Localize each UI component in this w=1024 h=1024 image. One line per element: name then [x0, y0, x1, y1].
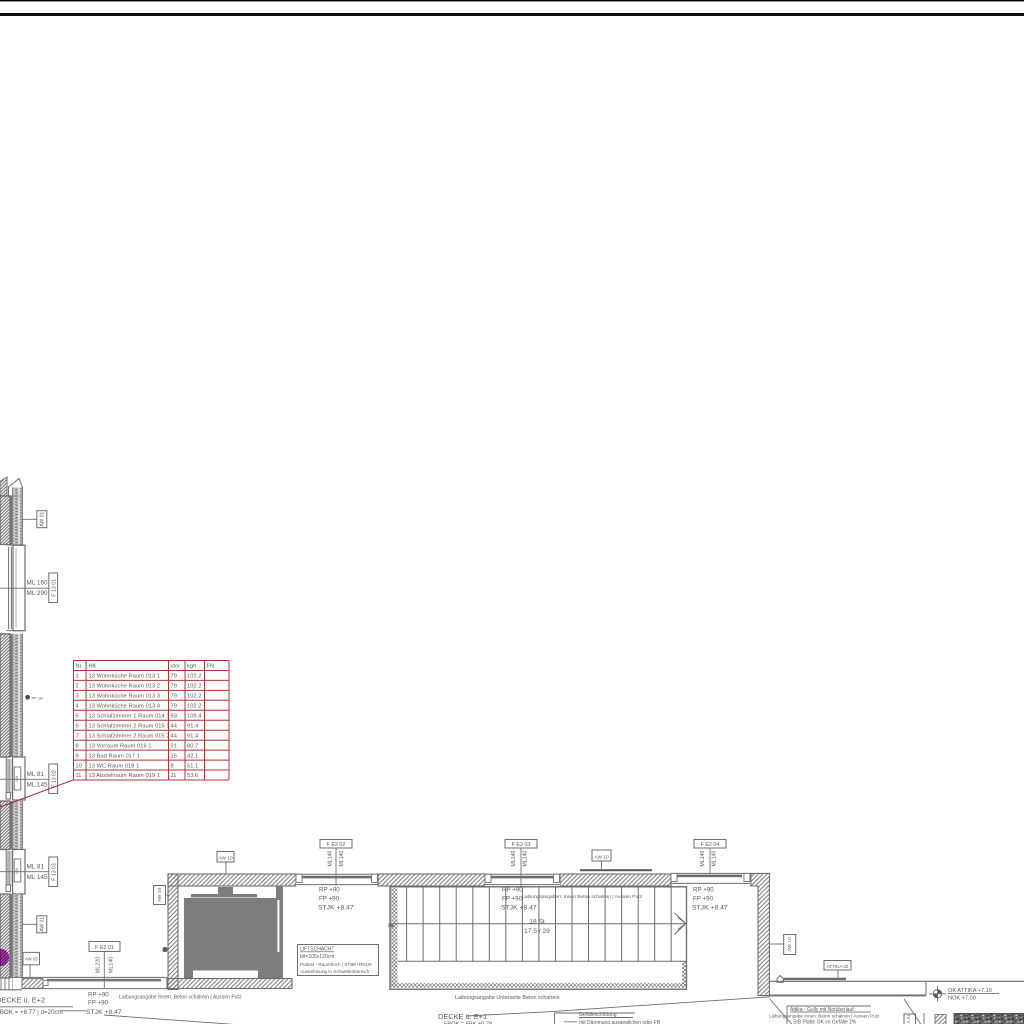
svg-text:FBOK = +8.77 | d=20cm: FBOK = +8.77 | d=20cm [0, 1009, 63, 1016]
svg-text:13 Wohnküche Raum 013 4: 13 Wohnküche Raum 013 4 [89, 704, 161, 710]
svg-text:AW 03: AW 03 [25, 957, 39, 962]
svg-text:vtor: vtor [171, 664, 181, 670]
svg-text:4: 4 [76, 704, 79, 710]
svg-text:102.2: 102.2 [187, 674, 201, 680]
svg-text:13 Abstellraum Raum 019 1: 13 Abstellraum Raum 019 1 [89, 773, 160, 779]
svg-text:31: 31 [171, 743, 177, 749]
svg-text:51.1: 51.1 [187, 763, 198, 769]
svg-text:PP 1B: PP 1B [32, 696, 44, 701]
svg-text:FP +90: FP +90 [88, 1000, 109, 1007]
svg-text:RP +90: RP +90 [502, 887, 523, 894]
svg-text:79: 79 [171, 704, 177, 710]
svg-text:L84: L84 [15, 776, 19, 782]
svg-text:10: 10 [76, 763, 82, 769]
svg-text:13 Vorraum Raum 016 1: 13 Vorraum Raum 016 1 [89, 743, 152, 749]
svg-text:ATTIKA 02: ATTIKA 02 [827, 964, 849, 969]
svg-text:kgh: kgh [187, 664, 196, 670]
svg-text:FN: FN [207, 664, 215, 670]
svg-text:b/t=105x120cm: b/t=105x120cm [300, 954, 334, 960]
svg-text:8: 8 [171, 763, 174, 769]
svg-text:ML140: ML140 [328, 850, 334, 866]
svg-text:F E2 01: F E2 01 [95, 945, 114, 951]
svg-text:ML140: ML140 [108, 957, 114, 973]
svg-text:RP +90: RP +90 [693, 887, 714, 894]
svg-text:FP +90: FP +90 [319, 896, 340, 903]
svg-text:AW 10: AW 10 [218, 856, 233, 862]
svg-text:8: 8 [76, 743, 79, 749]
svg-text:ML 145: ML 145 [27, 782, 49, 789]
svg-text:79: 79 [171, 674, 177, 680]
svg-text:StB Platte OK im Gefälle 2%: StB Platte OK im Gefälle 2% [793, 1020, 857, 1024]
svg-text:ML140: ML140 [339, 850, 345, 866]
svg-text:AW 01: AW 01 [40, 917, 46, 932]
svg-text:1: 1 [76, 674, 79, 680]
svg-text:79: 79 [171, 684, 177, 690]
svg-text:15: 15 [171, 753, 177, 759]
svg-text:5: 5 [76, 714, 79, 720]
svg-text:80.7: 80.7 [187, 743, 198, 749]
svg-text:DECKE ü. E+1: DECKE ü. E+1 [438, 1012, 487, 1021]
svg-text:F 13 01: F 13 01 [52, 579, 58, 597]
svg-text:ML220: ML220 [96, 957, 102, 973]
svg-text:F 13 03: F 13 03 [52, 863, 58, 881]
svg-text:6: 6 [76, 724, 79, 730]
svg-text:RP +90: RP +90 [88, 992, 109, 999]
svg-text:RP +90: RP +90 [319, 887, 340, 894]
svg-text:F E2 04: F E2 04 [701, 842, 720, 848]
svg-text:44: 44 [171, 724, 177, 730]
svg-text:18 St: 18 St [529, 918, 545, 925]
svg-text:91.4: 91.4 [187, 733, 198, 739]
svg-text:13 Schlafzimmer 1 Raum 014 1: 13 Schlafzimmer 1 Raum 014 1 [89, 714, 170, 720]
svg-text:13 Wohnküche Raum 013 2: 13 Wohnküche Raum 013 2 [89, 684, 161, 690]
svg-text:ML140: ML140 [523, 850, 529, 866]
svg-text:ML 81: ML 81 [27, 771, 45, 778]
svg-text:42.1: 42.1 [187, 753, 198, 759]
svg-text:Nr.: Nr. [76, 664, 84, 670]
svg-text:ML140: ML140 [511, 850, 517, 866]
svg-text:F E2 02: F E2 02 [327, 842, 346, 848]
svg-text:Laibungsangaben: Innen Beton s: Laibungsangaben: Innen Beton schalrein |… [522, 894, 643, 900]
svg-text:109.4: 109.4 [187, 714, 201, 720]
svg-text:F E2 03: F E2 03 [512, 842, 531, 848]
svg-text:Laibungsangabe Innen: Beton sc: Laibungsangabe Innen: Beton schalrein | … [119, 994, 242, 1000]
svg-text:ML 81: ML 81 [27, 864, 45, 871]
svg-text:mit Dämmung ausgeglichen oder: mit Dämmung ausgeglichen oder FB [579, 1020, 661, 1024]
svg-text:13 Schlafzimmer 2 Raum 015 1: 13 Schlafzimmer 2 Raum 015 1 [89, 724, 170, 730]
svg-text:44: 44 [171, 733, 177, 739]
svg-text:93: 93 [171, 714, 177, 720]
svg-text:7: 7 [76, 733, 79, 739]
svg-text:AW 10: AW 10 [787, 937, 793, 952]
svg-text:11: 11 [171, 773, 177, 779]
svg-text:102.2: 102.2 [187, 704, 201, 710]
svg-text:STJK +8.47: STJK +8.47 [692, 905, 728, 912]
svg-text:ML 160: ML 160 [27, 580, 49, 587]
svg-text:102.2: 102.2 [187, 694, 201, 700]
svg-text:13 Bad Raum 017 1: 13 Bad Raum 017 1 [89, 753, 140, 759]
svg-text:HK: HK [89, 664, 97, 670]
svg-text:ML140: ML140 [700, 850, 706, 866]
svg-text:STJK +8.47: STJK +8.47 [318, 905, 354, 912]
svg-text:102.2: 102.2 [187, 684, 201, 690]
svg-text:LA 01: LA 01 [906, 1014, 911, 1024]
svg-text:AW 01: AW 01 [40, 512, 46, 527]
svg-text:13 Schlafzimmer 2 Raum 015 2: 13 Schlafzimmer 2 Raum 015 2 [89, 733, 170, 739]
svg-text:3: 3 [76, 694, 79, 700]
svg-text:FP +90: FP +90 [502, 896, 523, 903]
svg-text:Laibungsangabe Unterseite Beto: Laibungsangabe Unterseite Beton schalrei… [455, 995, 560, 1001]
svg-text:ML 145: ML 145 [27, 874, 49, 881]
svg-text:91.4: 91.4 [187, 724, 198, 730]
svg-text:2: 2 [76, 684, 79, 690]
svg-text:FP +90: FP +90 [693, 896, 714, 903]
svg-text:9: 9 [76, 753, 79, 759]
svg-text:L84: L84 [15, 868, 19, 874]
svg-text:STJK +8.47: STJK +8.47 [501, 905, 537, 912]
svg-text:ML140: ML140 [712, 850, 718, 866]
svg-text:STJK +8.47: STJK +8.47 [86, 1009, 122, 1016]
svg-text:DECKE ü. E+2: DECKE ü. E+2 [0, 996, 45, 1005]
svg-text:F 13 02: F 13 02 [52, 770, 58, 788]
svg-text:17.5 / 29: 17.5 / 29 [524, 928, 550, 935]
svg-text:Podest - Raumhoch | STBK+RDUK: Podest - Raumhoch | STBK+RDUK [300, 962, 373, 967]
svg-text:79: 79 [171, 694, 177, 700]
svg-text:Ausnehmung in Schwellenbereich: Ausnehmung in Schwellenbereich [300, 969, 370, 974]
svg-text:13 Wohnküche Raum 013 3: 13 Wohnküche Raum 013 3 [89, 694, 161, 700]
svg-text:NOK +7.00: NOK +7.00 [948, 995, 976, 1001]
svg-text:ML 290: ML 290 [27, 590, 49, 597]
svg-text:13 Wohnküche Raum 013 1: 13 Wohnküche Raum 013 1 [89, 674, 161, 680]
svg-text:13 WC Raum 018 1: 13 WC Raum 018 1 [89, 763, 140, 769]
svg-text:AW 10: AW 10 [157, 888, 163, 903]
svg-text:53.6: 53.6 [187, 773, 198, 779]
svg-text:AW 10: AW 10 [594, 855, 609, 861]
svg-text:11: 11 [76, 773, 82, 779]
